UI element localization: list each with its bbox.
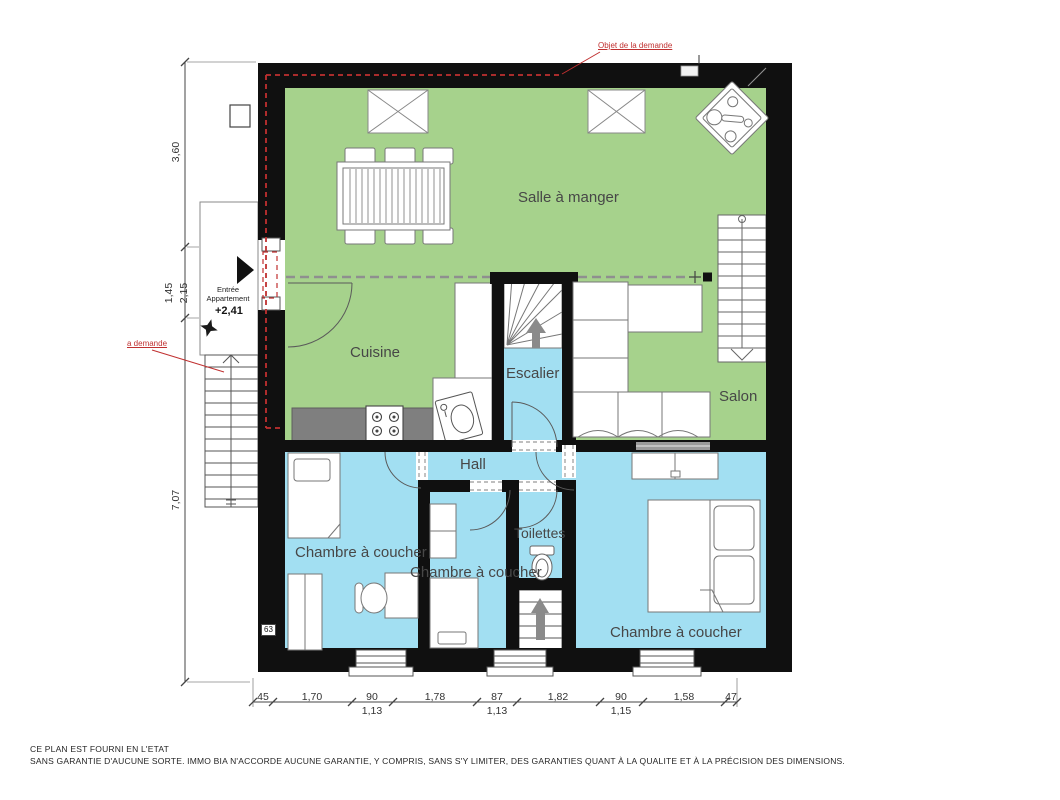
window xyxy=(487,650,553,676)
footer-disclaimer-line1: CE PLAN EST FOURNI EN L'ETAT xyxy=(30,744,169,754)
dim-left-1: 1,45 xyxy=(163,283,175,303)
dim-bottom-1: 1,70 xyxy=(302,691,322,703)
kitchen-counter xyxy=(292,408,433,442)
floor-plan-drawing xyxy=(0,0,1060,800)
room-label-salon: Salon xyxy=(719,388,757,405)
skylight-icon xyxy=(368,90,428,133)
single-bed xyxy=(288,453,340,538)
entrance-label-line2: Appartement xyxy=(196,294,260,303)
entrance-label-line1: Entrée xyxy=(196,285,260,294)
level-mark: +2,41 xyxy=(215,305,243,317)
pillow xyxy=(294,459,330,481)
dim-left-3: 7,07 xyxy=(170,490,182,510)
floor-plan: Salle à manger Cuisine Escalier Salon Ha… xyxy=(0,0,1060,800)
double-bed xyxy=(648,500,760,612)
entrance-label: Entrée Appartement xyxy=(196,285,260,304)
annotation-left-note: a demande xyxy=(127,339,167,348)
room-label-chambre-droite: Chambre à coucher xyxy=(610,624,742,641)
room-label-toilettes: Toilettes xyxy=(514,525,565,541)
dim-bottom-0: 45 xyxy=(257,691,269,703)
dim-left-2: 2,15 xyxy=(178,283,190,303)
room-label-cuisine: Cuisine xyxy=(350,344,400,361)
dresser xyxy=(632,453,718,479)
wall-marker-chip xyxy=(681,66,698,76)
exterior-stairs xyxy=(205,355,258,507)
pillow xyxy=(438,632,466,644)
annotation-top-note: Objet de la demande xyxy=(598,41,672,50)
wardrobe-small xyxy=(430,504,456,558)
stove-icon xyxy=(366,406,403,441)
interior-stairs-up xyxy=(718,215,766,362)
wall-tag: 63 xyxy=(261,624,276,636)
room-label-chambre-gauche: Chambre à coucher xyxy=(295,544,427,561)
room-label-escalier: Escalier xyxy=(506,365,559,382)
dim-bottom-sub-2: 1,13 xyxy=(362,705,382,717)
pillow xyxy=(714,556,754,604)
dim-bottom-8: 47 xyxy=(725,691,737,703)
desk-chair xyxy=(355,583,387,613)
dim-bottom-sub-4: 1,13 xyxy=(487,705,507,717)
pillar-marker xyxy=(230,105,250,127)
window xyxy=(633,650,701,676)
windows xyxy=(349,650,701,676)
pillow xyxy=(714,506,754,550)
footer-disclaimer-line2: SANS GARANTIE D'AUCUNE SORTE. IMMO BIA N… xyxy=(30,756,845,766)
window xyxy=(349,650,413,676)
skylight-icon xyxy=(588,90,645,133)
dim-bottom-4: 87 xyxy=(491,691,503,703)
dim-bottom-2: 90 xyxy=(366,691,378,703)
room-label-salle-a-manger: Salle à manger xyxy=(518,189,619,206)
room-label-chambre-milieu: Chambre à coucher xyxy=(410,564,542,581)
dim-left-0: 3,60 xyxy=(170,142,182,162)
room-label-hall: Hall xyxy=(460,456,486,473)
dining-set xyxy=(337,148,453,244)
dim-bottom-5: 1,82 xyxy=(548,691,568,703)
dim-bottom-7: 1,58 xyxy=(674,691,694,703)
wardrobe xyxy=(288,574,322,650)
dim-bottom-3: 1,78 xyxy=(425,691,445,703)
dim-bottom-6: 90 xyxy=(615,691,627,703)
dim-bottom-sub-6: 1,15 xyxy=(611,705,631,717)
single-bed-middle xyxy=(430,578,478,648)
